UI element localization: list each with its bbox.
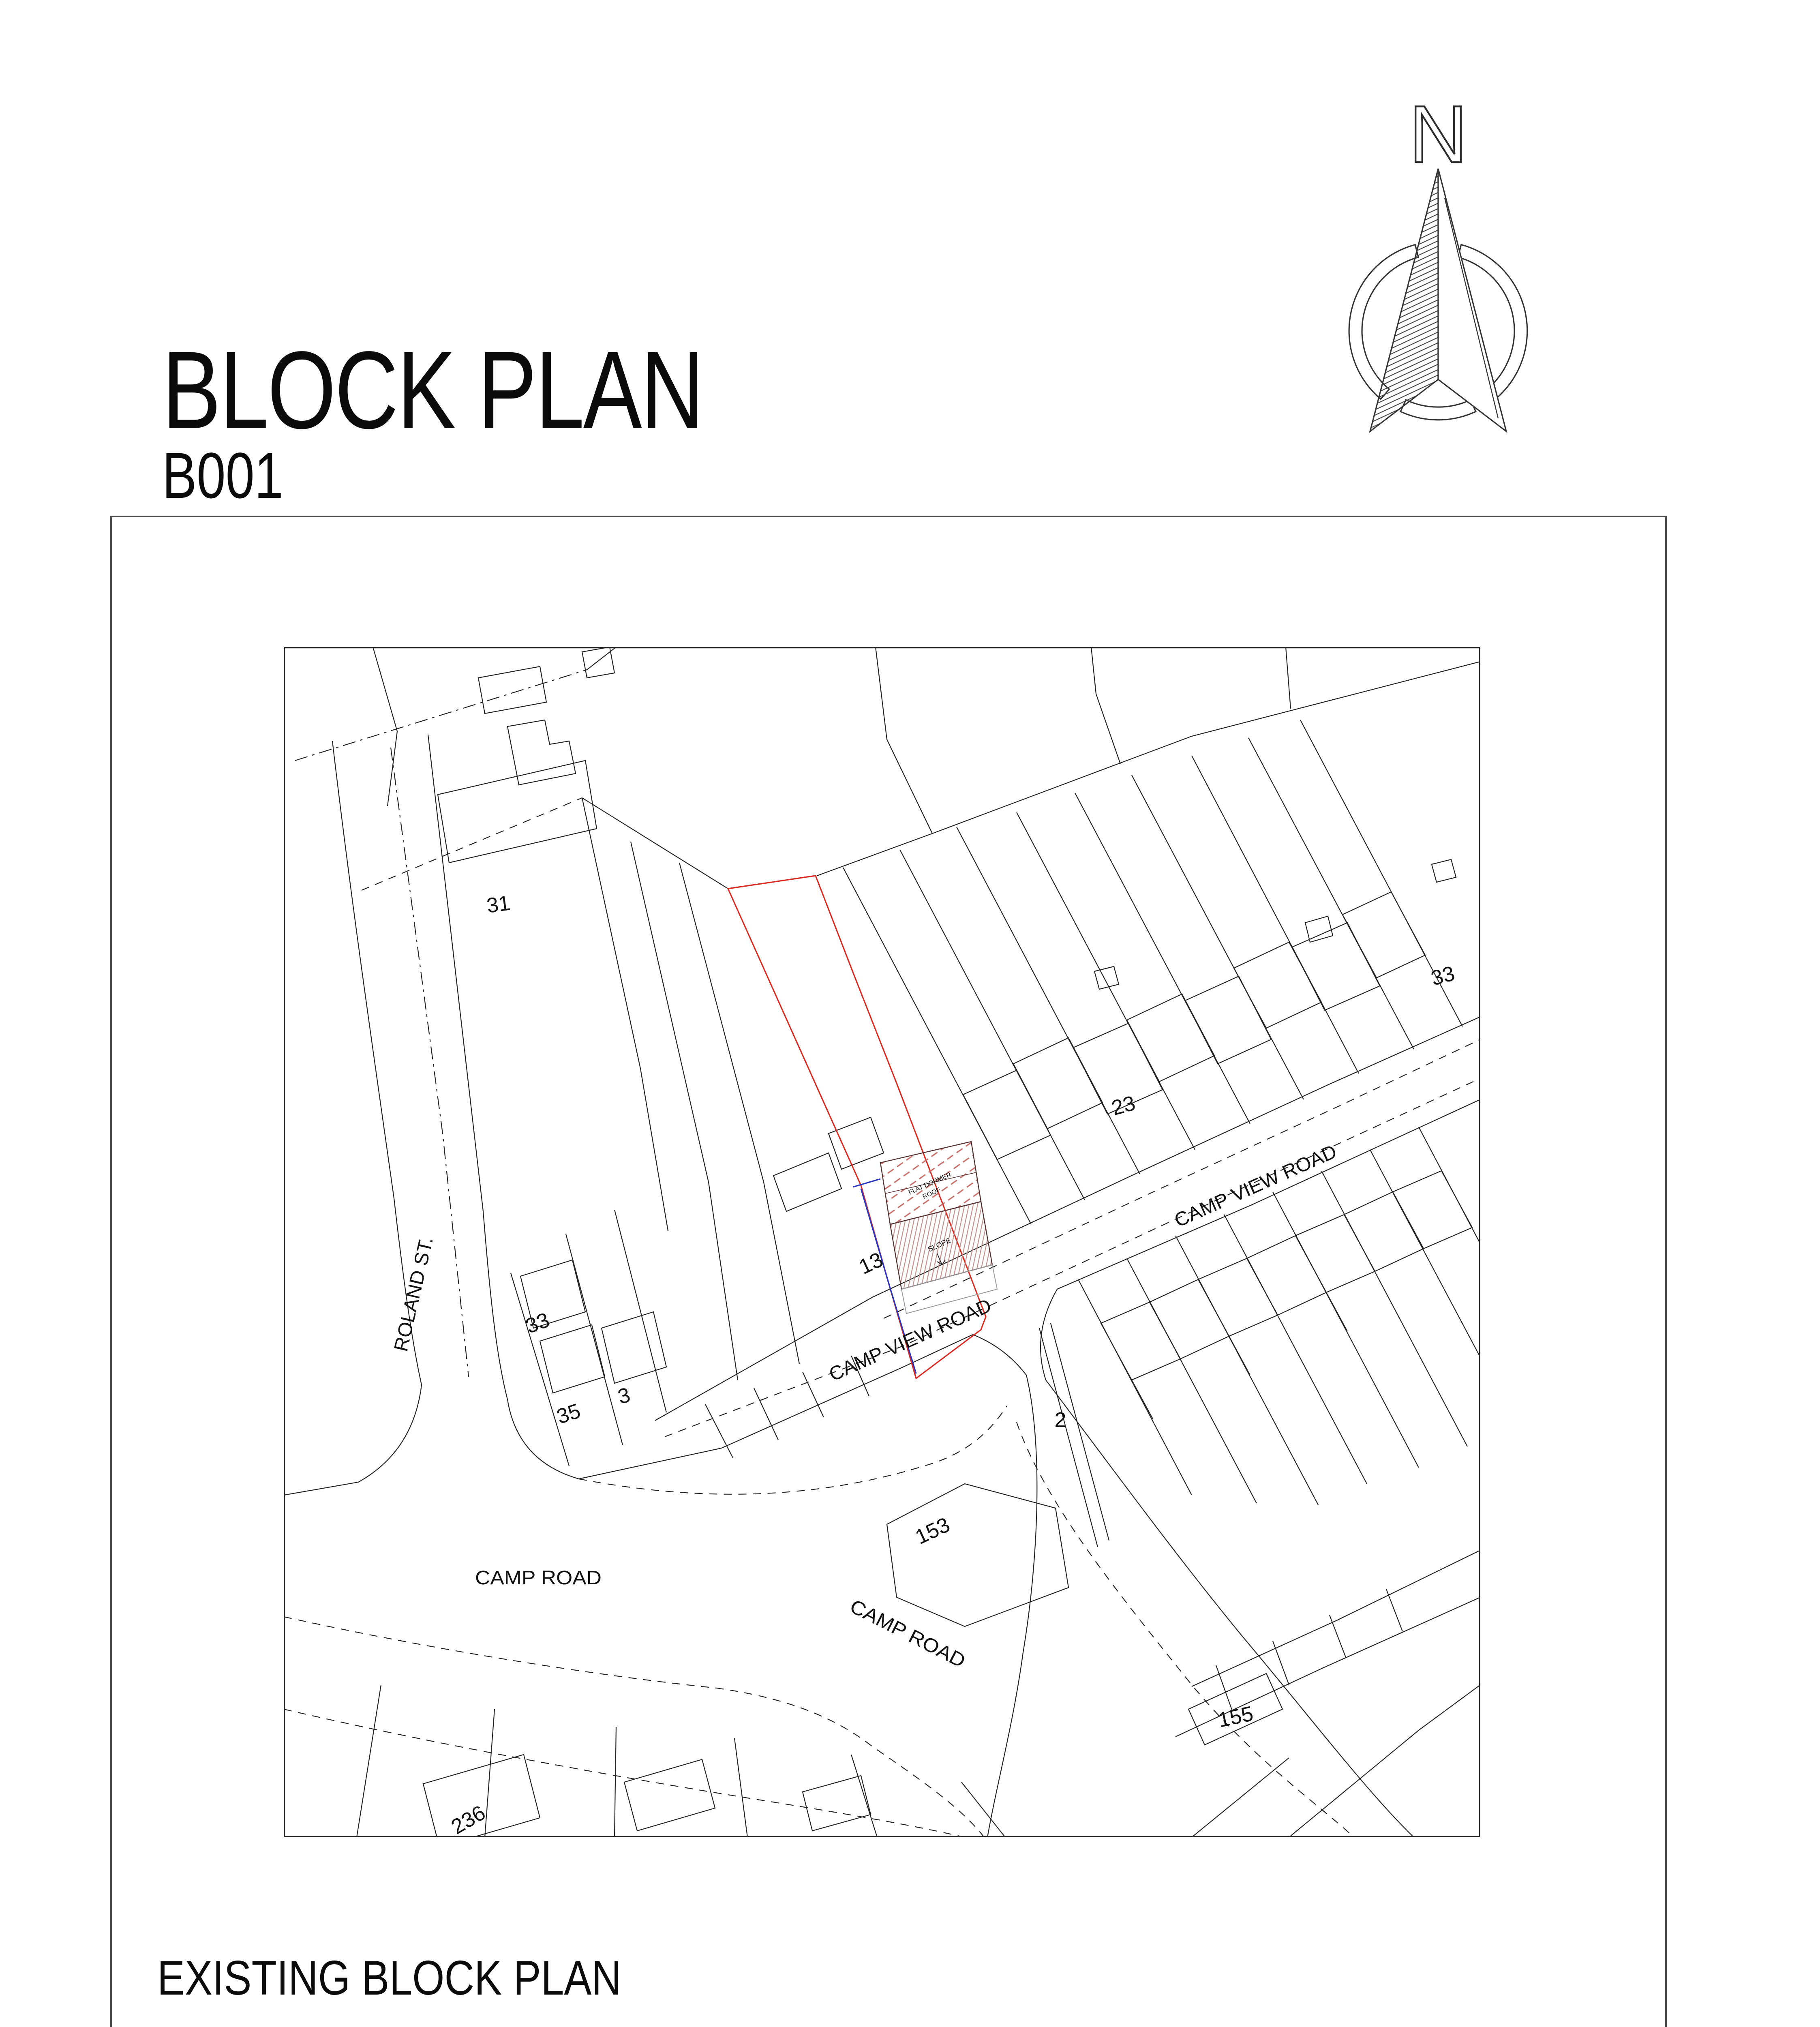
drawing-code: B001 — [162, 441, 283, 514]
map-border — [285, 648, 1480, 1837]
map-label: 2 — [1055, 1408, 1066, 1432]
page-title: BLOCK PLAN — [162, 328, 703, 454]
map-caption: EXISTING BLOCK PLAN — [157, 1952, 621, 2008]
compass-icon: N — [1349, 91, 1527, 431]
north-arrow: N — [1317, 91, 1560, 472]
north-label: N — [1409, 91, 1467, 180]
map-label: CAMP ROAD — [475, 1567, 602, 1589]
site-map: ROLAND ST.CAMP VIEW ROADCAMP VIEW ROADCA… — [284, 647, 1480, 1837]
block-plan-page: BLOCK PLAN B001 N — [0, 0, 1820, 2027]
map-label: 31 — [485, 891, 512, 917]
